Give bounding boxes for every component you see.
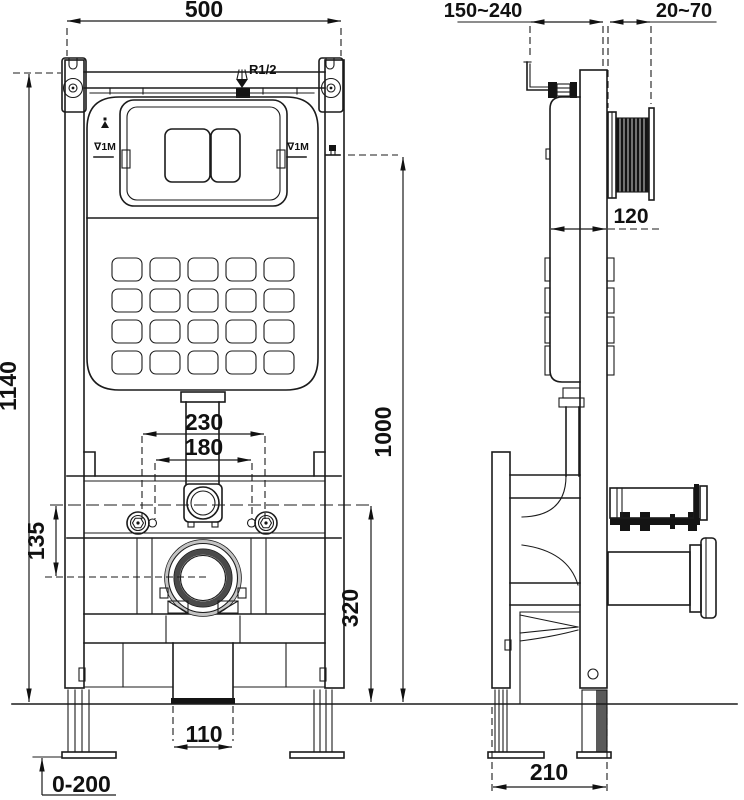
- dim-front-height: 1140: [0, 361, 21, 411]
- dim-leg-adjust: 0-200: [52, 771, 111, 797]
- dim-base-depth: 210: [530, 759, 568, 785]
- dim-fixing-outer: 230: [185, 409, 223, 435]
- dim-flush-plate-height: 1000: [370, 406, 396, 457]
- dim-drain-height: 320: [337, 589, 363, 627]
- water-inlet-label: R1/2: [249, 62, 276, 77]
- dim-wall-distance: 150~240: [444, 0, 522, 22]
- toilet-frame-drawing: R1/2 ∇1M ∇1M: [0, 0, 744, 800]
- dim-fixing-inner: 180: [185, 434, 223, 460]
- dim-plate-range: 20~70: [656, 0, 712, 22]
- drain-base-opening: [171, 698, 235, 704]
- dim-cistern-depth: 120: [613, 205, 648, 228]
- level-mark-right-label: ∇1M: [287, 141, 309, 153]
- dim-drain-offset: 135: [23, 522, 49, 561]
- dim-front-width: 500: [185, 0, 223, 22]
- technical-drawing-page: R1/2 ∇1M ∇1M: [0, 0, 744, 800]
- level-mark-left-label: ∇1M: [94, 141, 116, 153]
- dim-outlet-width: 110: [185, 721, 222, 747]
